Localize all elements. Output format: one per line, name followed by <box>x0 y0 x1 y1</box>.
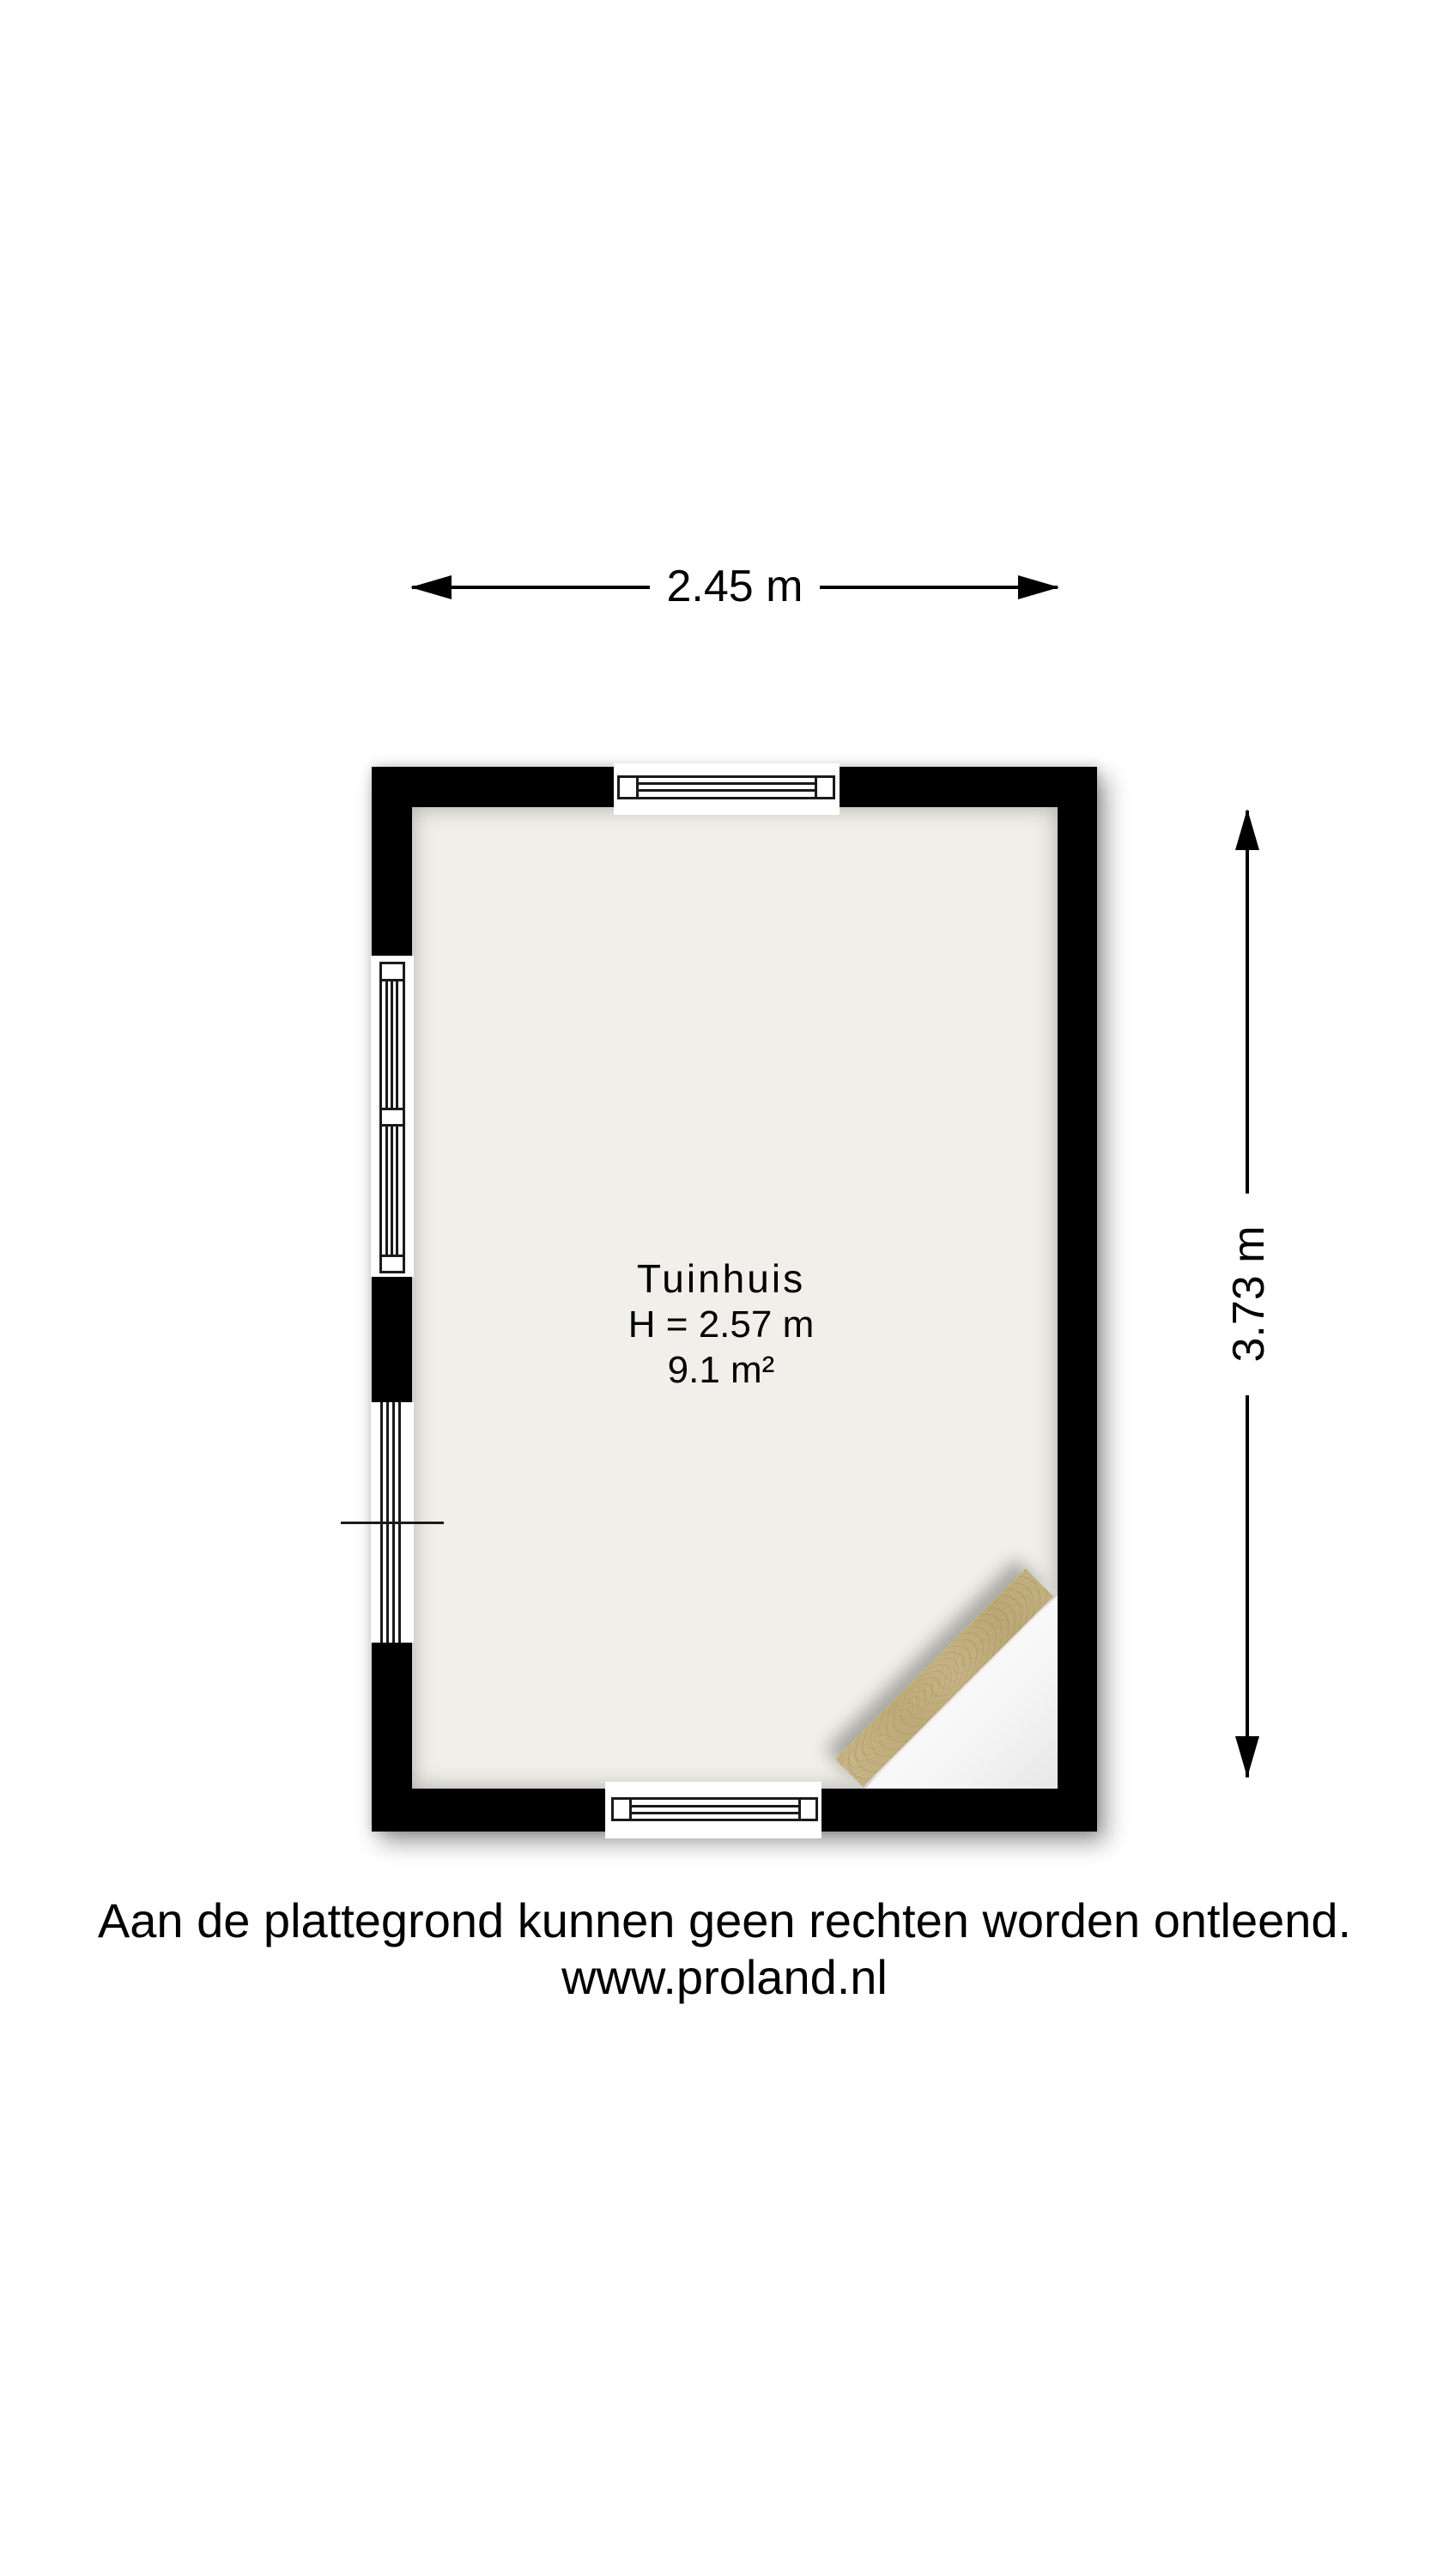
depth-dimension-line-top <box>1246 811 1249 1194</box>
room-label-block: Tuinhuis H = 2.57 m 9.1 m² <box>398 1255 1044 1393</box>
floorplan-page: 2.45 m <box>0 0 1449 2576</box>
section-tick-line <box>341 1522 444 1524</box>
window-mullion-line <box>385 1127 388 1255</box>
window-mullion-line <box>396 1127 398 1255</box>
window-glazing-line <box>639 782 815 785</box>
window-glazing-line <box>639 789 815 792</box>
arrowhead-down-icon <box>1235 1736 1259 1777</box>
room-ceiling-height: H = 2.57 m <box>398 1302 1044 1347</box>
arrowhead-up-icon <box>1235 809 1259 850</box>
room-area: 9.1 m² <box>398 1347 1044 1393</box>
window-cap-divider <box>815 778 817 797</box>
window-cap-divider <box>798 1800 801 1819</box>
window-mullion-line <box>385 981 388 1108</box>
window-mullion-line <box>396 981 398 1108</box>
width-dimension-label: 2.45 m <box>650 562 820 611</box>
window-mullion-line <box>391 981 393 1108</box>
window-cap-divider <box>636 778 639 797</box>
arrowhead-right-icon <box>1018 575 1059 599</box>
footer-disclaimer: Aan de plattegrond kunnen geen rechten w… <box>0 1894 1449 1947</box>
window-mullion-line <box>391 1127 393 1255</box>
depth-dimension-line-bottom <box>1246 1395 1249 1777</box>
arrowhead-left-icon <box>410 575 452 599</box>
window-cap-divider <box>629 1800 632 1819</box>
window-frame <box>617 775 835 799</box>
window-frame <box>611 1797 818 1821</box>
footer-website: www.proland.nl <box>0 1951 1449 2004</box>
room-name: Tuinhuis <box>398 1255 1044 1302</box>
depth-dimension-label: 3.73 m <box>1225 1195 1270 1393</box>
window-glazing-line <box>632 1805 798 1807</box>
window-glazing-line <box>632 1812 798 1814</box>
window-cap-divider <box>382 1108 403 1110</box>
